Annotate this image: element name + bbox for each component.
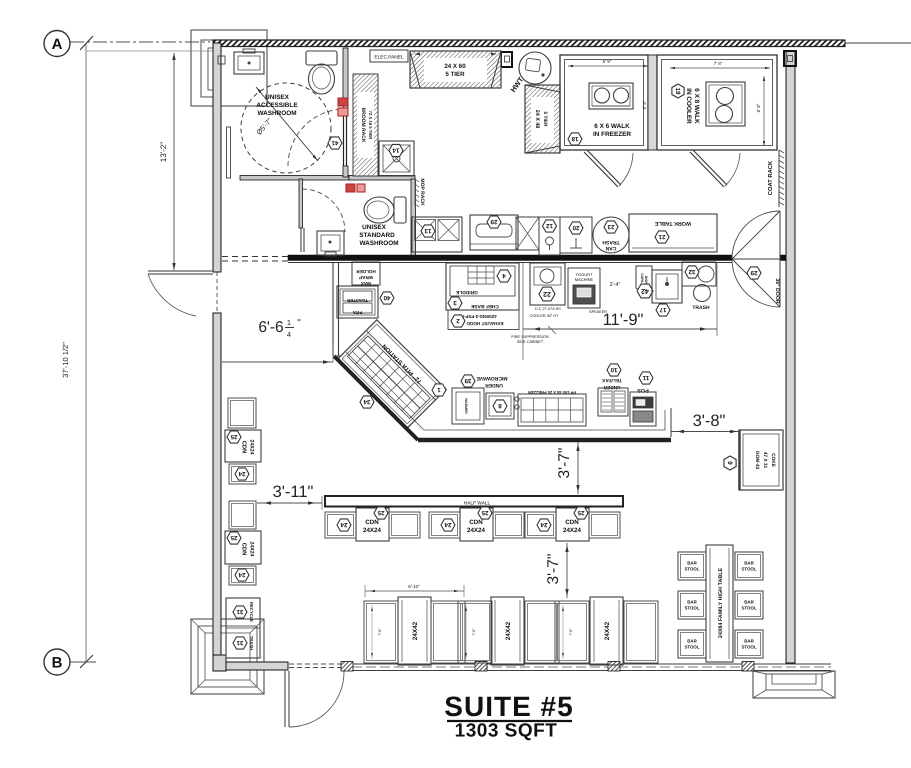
svg-text:WORK TABLE: WORK TABLE [655, 220, 692, 226]
svg-text:25: 25 [230, 433, 237, 440]
svg-text:BAR: BAR [687, 561, 697, 566]
svg-text:11'-9": 11'-9" [603, 311, 644, 329]
svg-text:1: 1 [437, 386, 441, 393]
svg-text:UNDER: UNDER [603, 384, 621, 390]
svg-text:WARMER: WARMER [464, 398, 468, 414]
svg-text:STOOL: STOOL [741, 645, 756, 650]
svg-text:24: 24 [444, 521, 451, 528]
svg-text:": " [297, 318, 301, 329]
svg-text:24 X 60: 24 X 60 [444, 63, 466, 70]
svg-text:10: 10 [610, 366, 617, 373]
svg-text:39: 39 [464, 377, 471, 384]
svg-text:25: 25 [377, 509, 384, 516]
svg-text:24X42: 24X42 [505, 621, 512, 640]
svg-text:UNDER: UNDER [485, 382, 503, 388]
svg-text:36" DOOR: 36" DOOR [774, 278, 780, 303]
svg-text:24X42: 24X42 [412, 621, 419, 640]
svg-text:13'-2": 13'-2" [159, 142, 168, 163]
svg-text:24X24: 24X24 [363, 527, 381, 534]
svg-text:25: 25 [481, 509, 488, 516]
svg-text:BAR: BAR [744, 561, 754, 566]
svg-text:ELEC.PANEL: ELEC.PANEL [374, 55, 404, 61]
svg-text:HALF WALL: HALF WALL [464, 501, 491, 507]
svg-text:TRASH: TRASH [602, 239, 620, 245]
svg-text:A: A [52, 36, 63, 53]
svg-text:CHEF BASE: CHEF BASE [470, 303, 499, 309]
svg-text:24X84 FAMILY HIGH TABLE: 24X84 FAMILY HIGH TABLE [718, 567, 724, 638]
svg-text:IN FREEZER: IN FREEZER [593, 131, 631, 138]
svg-text:34: 34 [363, 398, 370, 405]
svg-text:BAR: BAR [687, 639, 697, 644]
svg-text:STANDARD: STANDARD [359, 232, 395, 239]
svg-text:STOOL: STOOL [741, 567, 756, 572]
svg-text:6'-10": 6'-10" [408, 584, 420, 589]
svg-text:STOOL: STOOL [684, 567, 699, 572]
svg-text:WRAP: WRAP [359, 275, 373, 280]
svg-text:BROOM RACK: BROOM RACK [360, 108, 366, 143]
svg-text:31: 31 [236, 639, 243, 646]
svg-text:7' 8": 7' 8" [714, 61, 723, 66]
svg-text:TRASH: TRASH [692, 305, 710, 311]
svg-text:7'-8": 7'-8" [569, 628, 573, 636]
svg-text:6 X 6 WALK: 6 X 6 WALK [594, 123, 630, 130]
svg-text:25: 25 [577, 509, 584, 516]
svg-text:14: 14 [392, 146, 399, 153]
svg-text:U.C 27-47A HC: U.C 27-47A HC [535, 307, 561, 311]
svg-text:COAT RACK: COAT RACK [767, 160, 774, 195]
svg-text:24 X 48: 24 X 48 [534, 110, 540, 129]
svg-text:25: 25 [230, 534, 237, 541]
svg-text:CAN: CAN [605, 245, 616, 251]
svg-text:2'-4": 2'-4" [610, 282, 621, 288]
svg-text:20: 20 [572, 224, 579, 231]
svg-text:24: 24 [540, 521, 547, 528]
svg-text:STOOL: STOOL [684, 606, 699, 611]
svg-text:B: B [52, 655, 63, 672]
svg-text:24: 24 [238, 571, 245, 578]
svg-text:13: 13 [424, 227, 431, 234]
svg-text:24: 24 [340, 521, 347, 528]
svg-text:ACCESSIBLE: ACCESSIBLE [256, 102, 298, 109]
svg-text:7'-8": 7'-8" [378, 628, 382, 636]
svg-text:12: 12 [546, 222, 553, 229]
svg-text:17: 17 [659, 306, 666, 313]
svg-text:5' 9": 5' 9" [603, 59, 612, 64]
svg-text:CDN: CDN [365, 519, 379, 526]
svg-text:6' 8": 6' 8" [756, 103, 761, 112]
svg-text:24: 24 [238, 470, 245, 477]
svg-text:GRIDDLE: GRIDDLE [455, 289, 477, 295]
svg-text:29: 29 [750, 269, 757, 276]
svg-text:MICROWAVE: MICROWAVE [476, 375, 508, 381]
svg-text:5 TIER: 5 TIER [445, 71, 465, 78]
svg-text:7'-8": 7'-8" [472, 628, 476, 636]
svg-text:1303 SQFT: 1303 SQFT [455, 721, 558, 742]
svg-text:IN COOLER: IN COOLER [685, 88, 692, 124]
svg-text:BAR: BAR [687, 600, 697, 605]
svg-text:40: 40 [383, 294, 390, 301]
svg-text:BAR: BAR [744, 639, 754, 644]
svg-text:24X24: 24X24 [467, 527, 485, 534]
svg-text:11: 11 [642, 374, 649, 381]
svg-text:42: 42 [641, 287, 649, 294]
svg-text:41: 41 [331, 139, 338, 146]
svg-text:CDN: CDN [241, 543, 248, 556]
svg-text:24X24: 24X24 [249, 439, 255, 454]
svg-text:6 X 8 WALK: 6 X 8 WALK [693, 88, 700, 124]
svg-text:CDN: CDN [565, 519, 579, 526]
svg-text:WAX: WAX [360, 281, 371, 286]
svg-text:BAR: BAR [744, 600, 754, 605]
svg-text:SIDE CABINET: SIDE CABINET [517, 340, 544, 344]
svg-text:18: 18 [571, 135, 578, 142]
svg-text:3'-7": 3'-7" [545, 554, 562, 585]
svg-text:FIRE SUPPRESSION: FIRE SUPPRESSION [511, 335, 548, 339]
svg-text:6'-6: 6'-6 [258, 319, 283, 336]
svg-text:37'-10 1/2": 37'-10 1/2" [61, 342, 70, 378]
svg-text:4: 4 [502, 272, 506, 279]
svg-text:21: 21 [658, 233, 665, 240]
svg-text:DISP.: DISP. [644, 276, 648, 285]
svg-text:72 X 18 5 TIER: 72 X 18 5 TIER [368, 111, 373, 140]
svg-text:CDN: CDN [469, 519, 483, 526]
svg-text:COOLER 34" HT: COOLER 34" HT [530, 314, 559, 318]
svg-text:1: 1 [287, 318, 291, 327]
svg-text:3: 3 [453, 299, 457, 306]
svg-text:19: 19 [674, 88, 681, 95]
svg-text:MACHINE: MACHINE [575, 277, 594, 282]
svg-text:32: 32 [688, 268, 695, 275]
svg-text:COKE: COKE [770, 453, 776, 468]
svg-text:TRASH: TRASH [249, 636, 254, 650]
svg-text:WASHROOM: WASHROOM [257, 110, 296, 117]
svg-text:UNISEX: UNISEX [362, 224, 387, 231]
svg-text:4: 4 [287, 330, 291, 339]
svg-text:47 X 31: 47 X 31 [762, 452, 768, 469]
svg-text:SUITE #5: SUITE #5 [444, 691, 573, 722]
svg-text:HOLDER: HOLDER [356, 269, 376, 274]
svg-text:TOASTER: TOASTER [346, 298, 368, 303]
svg-text:22: 22 [543, 290, 551, 297]
svg-text:23: 23 [607, 223, 614, 230]
svg-text:9: 9 [726, 461, 733, 465]
svg-text:29: 29 [490, 218, 497, 225]
svg-text:TEL/FAX: TEL/FAX [601, 377, 622, 383]
svg-text:CDN: CDN [241, 441, 248, 454]
svg-text:WASHROOM: WASHROOM [359, 240, 398, 247]
svg-text:3'-7": 3'-7" [556, 448, 573, 479]
svg-text:3'-11": 3'-11" [273, 483, 314, 501]
svg-text:RECYCLE: RECYCLE [249, 602, 254, 622]
svg-text:24X42: 24X42 [604, 621, 611, 640]
svg-text:24X24: 24X24 [563, 527, 581, 534]
svg-text:UNISEX: UNISEX [265, 94, 290, 101]
svg-text:MOP RACK: MOP RACK [419, 178, 425, 206]
svg-text:2: 2 [456, 317, 460, 324]
svg-text:24X24: 24X24 [249, 541, 255, 556]
svg-text:3'-8": 3'-8" [693, 412, 726, 430]
svg-text:EXHAUST HOOD: EXHAUST HOOD [466, 321, 504, 326]
svg-text:GOM-43: GOM-43 [754, 451, 760, 470]
svg-text:8: 8 [498, 402, 502, 409]
svg-text:STOOL: STOOL [684, 645, 699, 650]
svg-text:5 TIER: 5 TIER [542, 112, 548, 127]
svg-text:PITA: PITA [352, 310, 363, 315]
svg-text:31: 31 [236, 608, 243, 615]
svg-text:5' 9": 5' 9" [642, 100, 647, 109]
svg-text:42SEND-2-PSP-F: 42SEND-2-PSP-F [461, 314, 497, 319]
svg-text:STOOL: STOOL [741, 606, 756, 611]
